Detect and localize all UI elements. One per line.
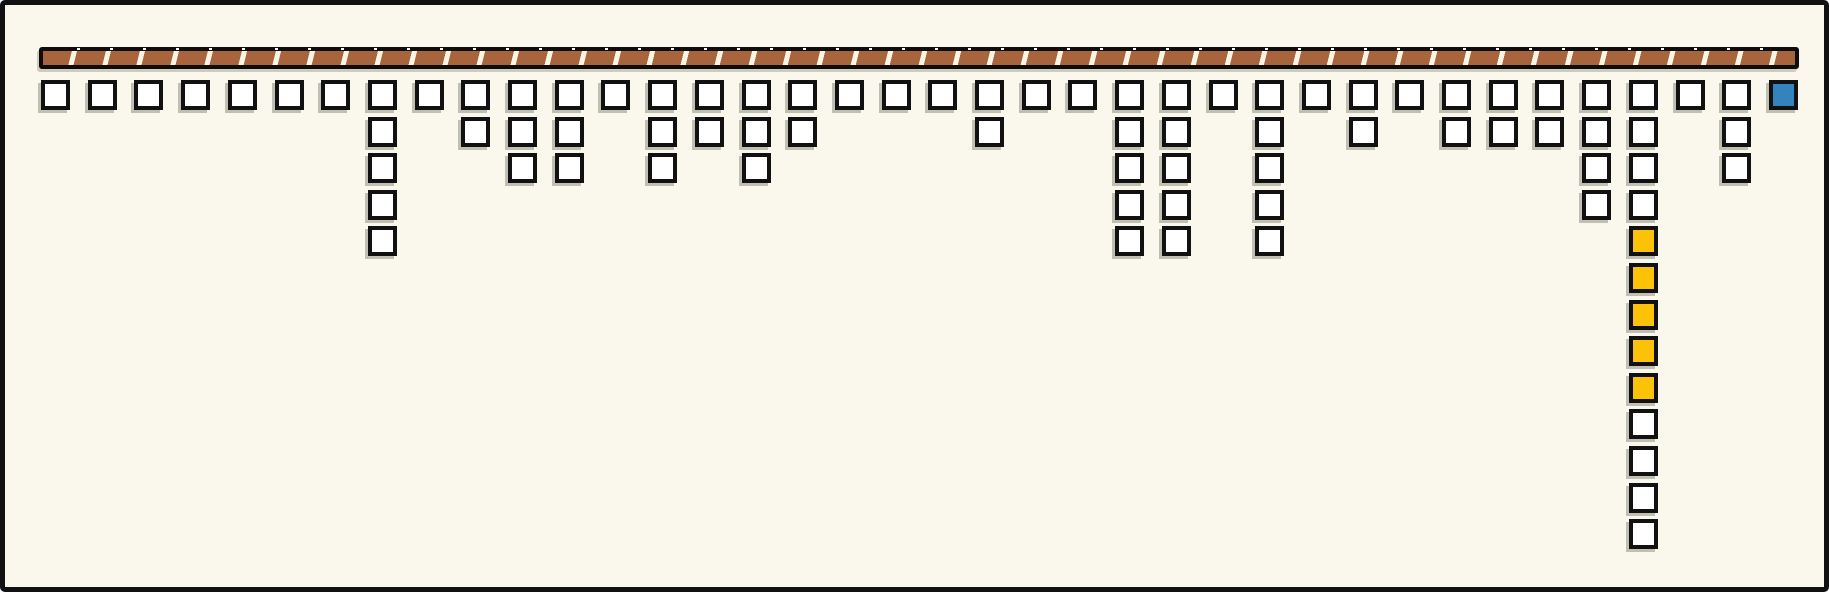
cell[interactable]: [1535, 117, 1564, 147]
cell[interactable]: [1629, 446, 1658, 476]
cell[interactable]: [368, 226, 397, 256]
cell[interactable]: [695, 117, 724, 147]
cell[interactable]: [975, 117, 1004, 147]
cell[interactable]: [1302, 80, 1331, 110]
cell-yellow-highlight[interactable]: [1629, 263, 1658, 293]
cell-yellow-highlight[interactable]: [1629, 336, 1658, 366]
cell[interactable]: [1115, 80, 1144, 110]
cell[interactable]: [1162, 117, 1191, 147]
cell[interactable]: [1629, 190, 1658, 220]
cell[interactable]: [1722, 153, 1751, 183]
cell[interactable]: [555, 153, 584, 183]
cell[interactable]: [1442, 117, 1471, 147]
cell-yellow-highlight[interactable]: [1629, 300, 1658, 330]
cell[interactable]: [1255, 226, 1284, 256]
cell[interactable]: [508, 153, 537, 183]
cell[interactable]: [461, 117, 490, 147]
hatched-beam: [39, 47, 1799, 69]
cell[interactable]: [1629, 80, 1658, 110]
cell[interactable]: [1629, 117, 1658, 147]
cell[interactable]: [1255, 190, 1284, 220]
cell[interactable]: [1629, 409, 1658, 439]
cell[interactable]: [1162, 226, 1191, 256]
cell[interactable]: [228, 80, 257, 110]
cell[interactable]: [742, 80, 771, 110]
cell[interactable]: [508, 117, 537, 147]
cell[interactable]: [555, 117, 584, 147]
cell[interactable]: [1115, 153, 1144, 183]
cell[interactable]: [368, 117, 397, 147]
cell[interactable]: [788, 117, 817, 147]
cell[interactable]: [1162, 153, 1191, 183]
cell[interactable]: [1629, 153, 1658, 183]
cell[interactable]: [601, 80, 630, 110]
cell[interactable]: [1162, 80, 1191, 110]
cell[interactable]: [1115, 117, 1144, 147]
cell[interactable]: [695, 80, 724, 110]
board-canvas: [0, 0, 1829, 592]
cell[interactable]: [742, 117, 771, 147]
cell[interactable]: [1676, 80, 1705, 110]
cell[interactable]: [1162, 190, 1191, 220]
cell-yellow-highlight[interactable]: [1629, 373, 1658, 403]
cell[interactable]: [1442, 80, 1471, 110]
cell[interactable]: [1629, 483, 1658, 513]
beam-tick-dots: [47, 48, 1791, 50]
cell[interactable]: [1489, 80, 1518, 110]
cell[interactable]: [321, 80, 350, 110]
cell[interactable]: [41, 80, 70, 110]
cell[interactable]: [742, 153, 771, 183]
cell[interactable]: [508, 80, 537, 110]
cell[interactable]: [1582, 117, 1611, 147]
cell[interactable]: [1582, 153, 1611, 183]
cell[interactable]: [1255, 80, 1284, 110]
cell[interactable]: [1022, 80, 1051, 110]
cell[interactable]: [648, 153, 677, 183]
cell[interactable]: [835, 80, 864, 110]
cell[interactable]: [368, 153, 397, 183]
cell[interactable]: [1349, 80, 1378, 110]
cell[interactable]: [1068, 80, 1097, 110]
cell[interactable]: [1349, 117, 1378, 147]
cell[interactable]: [928, 80, 957, 110]
cell[interactable]: [1115, 226, 1144, 256]
cell[interactable]: [134, 80, 163, 110]
cell[interactable]: [1629, 519, 1658, 549]
cell[interactable]: [1489, 117, 1518, 147]
cell[interactable]: [1722, 117, 1751, 147]
cell[interactable]: [368, 190, 397, 220]
cell[interactable]: [1582, 190, 1611, 220]
cell[interactable]: [1722, 80, 1751, 110]
cell[interactable]: [555, 80, 584, 110]
cell[interactable]: [1255, 153, 1284, 183]
cell[interactable]: [975, 80, 1004, 110]
cell[interactable]: [1115, 190, 1144, 220]
cell-yellow-highlight[interactable]: [1629, 226, 1658, 256]
cell[interactable]: [368, 80, 397, 110]
cell[interactable]: [1535, 80, 1564, 110]
cell[interactable]: [275, 80, 304, 110]
cell[interactable]: [1209, 80, 1238, 110]
cell[interactable]: [788, 80, 817, 110]
cell[interactable]: [1255, 117, 1284, 147]
cell[interactable]: [1582, 80, 1611, 110]
cell[interactable]: [882, 80, 911, 110]
cell[interactable]: [648, 80, 677, 110]
cell[interactable]: [461, 80, 490, 110]
cell[interactable]: [181, 80, 210, 110]
cell[interactable]: [648, 117, 677, 147]
cell[interactable]: [88, 80, 117, 110]
beam-stripe-pattern: [43, 51, 1795, 65]
cell[interactable]: [1395, 80, 1424, 110]
cell-blue-highlight[interactable]: [1769, 80, 1798, 110]
cell[interactable]: [415, 80, 444, 110]
